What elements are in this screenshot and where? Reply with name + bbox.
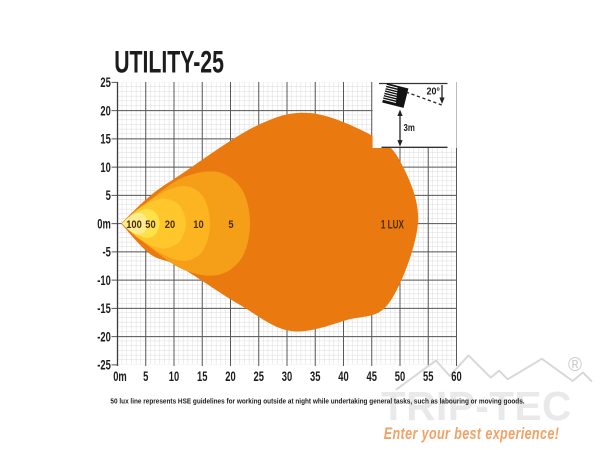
svg-text:0m: 0m [113,368,127,384]
svg-text:1 LUX: 1 LUX [381,219,404,232]
svg-text:25: 25 [100,74,111,90]
svg-text:10: 10 [100,159,111,175]
svg-text:15: 15 [100,131,111,147]
svg-text:3m: 3m [404,122,415,133]
svg-text:35: 35 [310,368,321,384]
svg-text:45: 45 [367,368,378,384]
svg-text:40: 40 [338,368,349,384]
svg-text:15: 15 [197,368,208,384]
svg-text:0m: 0m [97,215,111,231]
svg-text:100: 100 [126,219,142,231]
svg-text:5: 5 [228,219,233,231]
svg-text:25: 25 [254,368,265,384]
svg-text:UTILITY-25: UTILITY-25 [114,44,224,79]
svg-text:55: 55 [423,368,434,384]
svg-text:-25: -25 [97,357,111,373]
svg-text:20: 20 [225,368,236,384]
svg-text:50: 50 [395,368,406,384]
svg-text:-20: -20 [97,328,111,344]
svg-text:50 lux line represents HSE gui: 50 lux line represents HSE guidelines fo… [110,398,524,405]
svg-text:TRIP-TEC: TRIP-TEC [381,383,572,429]
svg-text:Enter your best experience!: Enter your best experience! [384,424,560,443]
svg-text:30: 30 [282,368,293,384]
svg-text:-10: -10 [97,272,111,288]
svg-text:10: 10 [169,368,180,384]
svg-text:60: 60 [451,368,462,384]
svg-text:20: 20 [165,219,176,231]
svg-text:50: 50 [145,219,156,231]
svg-text:®: ® [568,355,582,376]
svg-text:20: 20 [100,102,111,118]
svg-text:-5: -5 [102,244,111,260]
svg-text:5: 5 [106,187,112,203]
svg-text:5: 5 [143,368,149,384]
svg-text:20°: 20° [427,86,441,98]
svg-text:10: 10 [193,219,204,231]
svg-text:-15: -15 [97,300,111,316]
